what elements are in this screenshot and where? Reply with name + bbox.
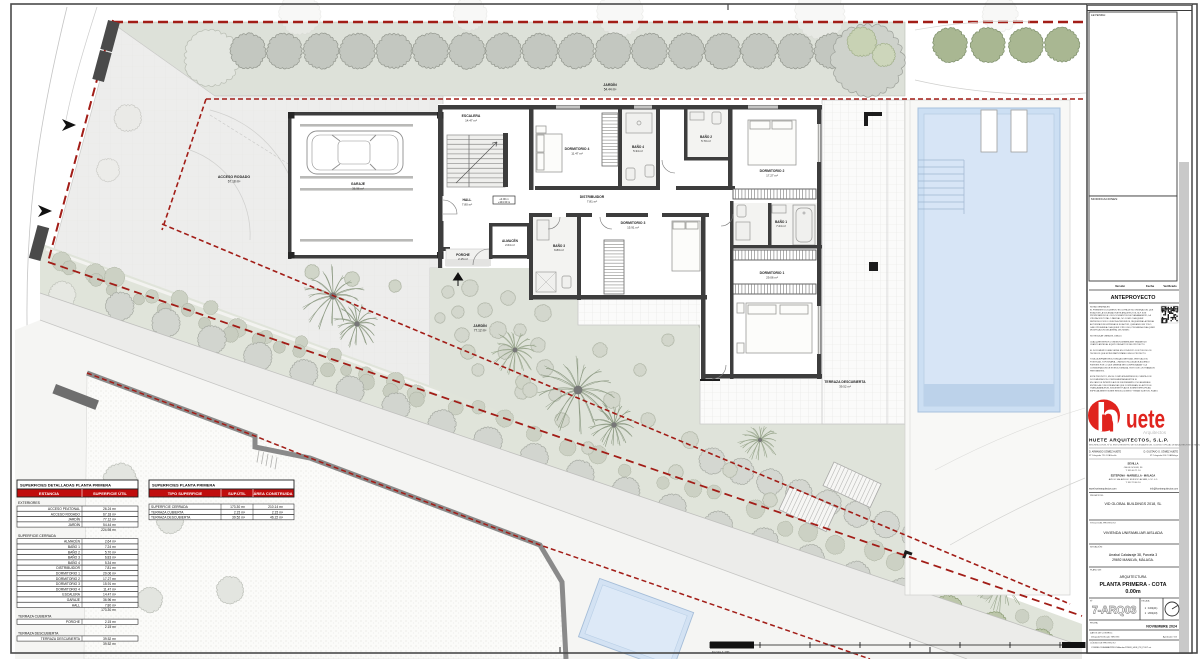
svg-text:5.34 m²: 5.34 m²	[105, 561, 117, 565]
svg-text:POSTECAS, TOPOGRAFIA...) HA SI: POSTECAS, TOPOGRAFIA...) HA SIDO INCLUID…	[1090, 361, 1150, 364]
svg-text:2.15 m²: 2.15 m²	[105, 625, 117, 629]
svg-text:EL PRESENTE DOCUMENTO ES COPIA: EL PRESENTE DOCUMENTO ES COPIA DE SU ORI…	[1090, 308, 1154, 311]
svg-text:173.30 m²: 173.30 m²	[230, 505, 246, 509]
svg-text:7.81 m²: 7.81 m²	[105, 566, 117, 570]
svg-text:HUETE ARQUITECTOS, S.L.P.: HUETE ARQUITECTOS, S.L.P.	[1089, 438, 1169, 443]
svg-text:TERRAZA DESCUBIERTA: TERRAZA DESCUBIERTA	[18, 631, 59, 635]
svg-text:FECHA:: FECHA:	[1090, 622, 1098, 625]
svg-text:VID GLOBAL BUILDINGS 2018, SL: VID GLOBAL BUILDINGS 2018, SL	[1105, 502, 1162, 506]
svg-text:TÍTULO DEL PROYECTO:: TÍTULO DEL PROYECTO:	[1090, 522, 1116, 525]
svg-text:7.24 m²: 7.24 m²	[105, 545, 117, 549]
svg-text:2.64 m²: 2.64 m²	[505, 243, 515, 247]
svg-text:DORMITORIO 4: DORMITORIO 4	[56, 587, 80, 591]
svg-text:6.83 m²: 6.83 m²	[105, 556, 117, 560]
svg-text:D. ARMANDO GÓMEZ HUETE: D. ARMANDO GÓMEZ HUETE	[1089, 451, 1121, 454]
svg-text:Dibujado/Verificado: SRL/GG: Dibujado/Verificado: SRL/GG	[1091, 636, 1120, 639]
svg-text:ACCESO RODADO: ACCESO RODADO	[218, 175, 251, 179]
svg-text:REPRODUCCION O CESION A TERCER: REPRODUCCION O CESION A TERCEROS, REQUER…	[1090, 320, 1154, 323]
svg-text:ESCALERA: ESCALERA	[62, 593, 80, 597]
svg-text:ESTANCIA: ESTANCIA	[39, 491, 59, 496]
svg-text:Aprobado: GG: Aprobado: GG	[1163, 636, 1177, 639]
svg-text:CONSIDERACION DE ESTRUCTURAS A: CONSIDERACION DE ESTRUCTURAS AL TEXTO DE…	[1090, 366, 1155, 369]
svg-text:EL DOCUMENTO DEBE VERSE EN CON: EL DOCUMENTO DEBE VERSE EN CONJUNTO CON …	[1090, 350, 1152, 352]
svg-text:17.27 m²: 17.27 m²	[766, 174, 778, 178]
svg-text:DORMITORIO 3: DORMITORIO 3	[621, 221, 646, 225]
svg-text:EXTERIORES: EXTERIORES	[18, 501, 41, 505]
svg-text:DISTRIBUIDOR: DISTRIBUIDOR	[580, 195, 605, 199]
svg-text:29692 MANILVA, MÁLAGA.: 29692 MANILVA, MÁLAGA.	[1112, 558, 1154, 562]
svg-text:210.14 m²: 210.14 m²	[268, 505, 284, 509]
svg-text:Fecha: Fecha	[1146, 284, 1155, 288]
svg-text:DOCUMENTACION COMPLEMENTARIA E: DOCUMENTACION COMPLEMENTARIA ENTRE SI.	[1090, 378, 1138, 381]
svg-text:2.15 m²: 2.15 m²	[272, 510, 284, 514]
svg-text:T. 955 46 71 10: T. 955 46 71 10	[1125, 470, 1141, 472]
svg-text:39.52 m²: 39.52 m²	[232, 516, 246, 520]
svg-text:JARDÍN: JARDÍN	[473, 323, 487, 328]
svg-text:PORCHE: PORCHE	[66, 620, 81, 624]
svg-text:CUALQUIER ERROR U OMISION DEBE: CUALQUIER ERROR U OMISION DEBERA SER TRA…	[1090, 340, 1147, 343]
svg-text:17.27 m²: 17.27 m²	[103, 577, 117, 581]
svg-text:14.47 m²: 14.47 m²	[103, 593, 117, 597]
svg-text:39.52 m²: 39.52 m²	[103, 642, 117, 646]
svg-text:ESPECIALMENTE SOBRE RESOLUCION: ESPECIALMENTE SOBRE RESOLUCIONES Y TEMAS…	[1090, 390, 1159, 393]
svg-text:ACCESO PEATONAL: ACCESO PEATONAL	[48, 507, 80, 511]
svg-text:TERRAZA DESCUBIERTA: TERRAZA DESCUBIERTA	[824, 380, 866, 384]
svg-text:Versión: Versión	[1115, 284, 1125, 288]
svg-text:www.huetearquitectos.com: www.huetearquitectos.com	[1089, 488, 1117, 491]
svg-text:JARDÍN: JARDÍN	[603, 82, 617, 87]
svg-text:29.06 m²: 29.06 m²	[766, 276, 778, 280]
svg-text:T. 952 79 66 10: T. 952 79 66 10	[1125, 482, 1141, 484]
svg-text:14.47 m²: 14.47 m²	[465, 119, 477, 123]
svg-text:224.98 m²: 224.98 m²	[101, 528, 117, 532]
svg-text:54.44 m²: 54.44 m²	[103, 523, 117, 527]
svg-text:INSCRITA CON EL Nº 41 EN EL RE: INSCRITA CON EL Nº 41 EN EL REGISTRO DE …	[1089, 444, 1200, 447]
svg-text:2.15 m²: 2.15 m²	[458, 257, 468, 261]
svg-text:NO REGULAR OBRAS EL DIBUJO.: NO REGULAR OBRAS EL DIBUJO.	[1090, 335, 1123, 338]
svg-text:SITUACIÓN:: SITUACIÓN:	[1090, 546, 1103, 549]
svg-text:Nº Colegiado 654 COAMálaga: Nº Colegiado 654 COAMálaga	[1150, 454, 1179, 457]
svg-text:6.83 m²: 6.83 m²	[554, 248, 564, 252]
svg-text:MODIFICACIONES:: MODIFICACIONES:	[1091, 197, 1118, 201]
svg-text:36.96 m²: 36.96 m²	[352, 187, 364, 191]
svg-text:67.18 m²: 67.18 m²	[103, 512, 117, 516]
svg-text:SUPERFICIE CERRADA: SUPERFICIE CERRADA	[18, 534, 57, 538]
svg-text:DORMITORIO 1: DORMITORIO 1	[760, 271, 785, 275]
svg-text:ANTEPROYECTO: ANTEPROYECTO	[1111, 295, 1156, 301]
svg-text:DORMITORIO 3: DORMITORIO 3	[56, 582, 80, 586]
svg-text:HALL: HALL	[72, 603, 80, 607]
svg-text:FUENTES POR LO QUE DEBERA SER: FUENTES POR LO QUE DEBERA SER COMPROBADA…	[1090, 364, 1147, 367]
svg-text:D. GUSTAVO G. GÓMEZ HUETE: D. GUSTAVO G. GÓMEZ HUETE	[1144, 451, 1179, 454]
svg-text:ENTRE LAS CONCORDANCIAS QUE CO: ENTRE LAS CONCORDANCIAS QUE CONTENGAN, E…	[1090, 384, 1152, 387]
svg-text:11.47 m²: 11.47 m²	[571, 152, 583, 156]
svg-text:AUTORIZACION EXPRESA DE SU AUT: AUTORIZACION EXPRESA DE SU AUTOR, QUEDAN…	[1090, 323, 1152, 326]
svg-text:54.44 m²: 54.44 m²	[604, 88, 617, 92]
svg-text:11.47 m²: 11.47 m²	[103, 587, 117, 591]
svg-text:1 : 100(A1): 1 : 100(A1)	[1145, 606, 1158, 610]
svg-text:7.81 m²: 7.81 m²	[587, 200, 597, 204]
svg-text:BAÑO 2: BAÑO 2	[68, 549, 80, 554]
svg-text:ALMACÉN: ALMACÉN	[64, 539, 81, 544]
svg-text:0.00m: 0.00m	[1125, 589, 1140, 595]
svg-text:2.15 m²: 2.15 m²	[105, 620, 117, 624]
svg-text:77.12 m²: 77.12 m²	[474, 329, 487, 333]
svg-text:NOTAS GENERALES:: NOTAS GENERALES:	[1090, 306, 1111, 309]
svg-text:info@huetearquitectos.com: info@huetearquitectos.com	[1150, 488, 1178, 491]
svg-text:HALL: HALL	[462, 198, 471, 202]
svg-text:AVD M. SALAVILLE I EDIFICIO AL: AVD M. SALAVILLE I EDIFICIO ALTAIR, LOC.…	[1109, 478, 1158, 481]
svg-text:39.52 m²: 39.52 m²	[103, 637, 117, 641]
svg-text:SUPERFICIE ÚTIL: SUPERFICIE ÚTIL	[93, 491, 128, 496]
svg-text:PLANTA PRIMERA - COTA: PLANTA PRIMERA - COTA	[1099, 582, 1166, 588]
svg-text:ARQUITECTURA: ARQUITECTURA	[1120, 575, 1147, 579]
svg-text:36.96 m²: 36.96 m²	[103, 598, 117, 602]
svg-text:uete: uete	[1126, 404, 1165, 434]
svg-text:DORMITORIO 4: DORMITORIO 4	[565, 147, 590, 151]
svg-text:Arquitectos: Arquitectos	[1143, 430, 1167, 435]
svg-text:CÓDIGO DE PROYECTO:: CÓDIGO DE PROYECTO:	[1090, 642, 1116, 645]
svg-text:SUPERFICIES PLANTA PRIMERA: SUPERFICIES PLANTA PRIMERA	[152, 483, 215, 488]
svg-text:Nº Colegiado 720 COASevilla: Nº Colegiado 720 COASevilla	[1089, 454, 1117, 457]
svg-text:DORMITORIO 2: DORMITORIO 2	[56, 577, 80, 581]
svg-text:7.80 m²: 7.80 m²	[105, 603, 117, 607]
svg-text:5.70 m²: 5.70 m²	[105, 550, 117, 554]
svg-text:ESCALA:: ESCALA:	[1142, 600, 1151, 603]
svg-text:LEYENDA:: LEYENDA:	[1091, 13, 1106, 17]
svg-text:DORMITORIO 2: DORMITORIO 2	[760, 169, 785, 173]
svg-text:TRASLADARA EN EL SIGUIENTE PLA: TRASLADARA EN EL SIGUIENTE PLAZOS SOBRE …	[1090, 387, 1152, 390]
svg-text:TERRAZA DESCUBIERTA: TERRAZA DESCUBIERTA	[151, 516, 191, 520]
svg-text:TIPO SUPERFICIE: TIPO SUPERFICIE	[168, 491, 203, 496]
svg-text:7-ARQ03: 7-ARQ03	[1092, 605, 1137, 617]
svg-text:BAÑO 4: BAÑO 4	[68, 560, 80, 565]
svg-text:GARAJE: GARAJE	[67, 598, 81, 602]
svg-text:C24MELODRAMAVIPROCAdmhm/22048_: C24MELODRAMAVIPROCAdmhm/22048_HUE_P8_PO0…	[1091, 646, 1152, 649]
svg-text:TECNICOS QUE ESTEN PARTICIPAND: TECNICOS QUE ESTEN PARTICIPANDO EN EL PR…	[1090, 352, 1147, 355]
svg-text:CALLE SOLER, 36: CALLE SOLER, 36	[1124, 466, 1143, 469]
svg-text:173.30 m²: 173.30 m²	[101, 608, 117, 612]
svg-text:PROMOTOR:: PROMOTOR:	[1090, 495, 1104, 497]
svg-text:2.64 m²: 2.64 m²	[105, 540, 117, 544]
svg-text:2.15 m²: 2.15 m²	[234, 510, 246, 514]
svg-text:BAÑO 1: BAÑO 1	[68, 544, 80, 549]
svg-text:ÁREA CONSTRUIDA: ÁREA CONSTRUIDA	[254, 491, 293, 496]
svg-text:TERRAZA CUBIERTA: TERRAZA CUBIERTA	[151, 510, 184, 514]
svg-text:29.06 m²: 29.06 m²	[103, 572, 117, 576]
svg-text:Verificado: Verificado	[1163, 284, 1177, 288]
svg-text:Arrabal Calataraje 38, Parcela: Arrabal Calataraje 38, Parcela 3	[1109, 553, 1157, 557]
svg-text:VIVIENDA UNIFAMILIAR AISLADA: VIVIENDA UNIFAMILIAR AISLADA	[1103, 531, 1163, 535]
svg-text:46.22 m²: 46.22 m²	[270, 516, 284, 520]
svg-text:+104.30 m: +104.30 m	[498, 200, 510, 204]
svg-text:77.12 m²: 77.12 m²	[103, 518, 117, 522]
svg-text:CUANTO ANTES AL EQUIPO REDACTO: CUANTO ANTES AL EQUIPO REDACTOR DEL PROY…	[1090, 343, 1146, 346]
svg-text:GARAJE: GARAJE	[351, 182, 366, 186]
svg-text:h: h	[1100, 411, 1114, 437]
svg-text:SUP.ÚTIL: SUP.ÚTIL	[228, 491, 246, 496]
svg-text:PERTINENTES.: PERTINENTES.	[1090, 370, 1105, 372]
svg-text:67.18 m²: 67.18 m²	[228, 180, 241, 184]
svg-text:TERRAZA CUBIERTA: TERRAZA CUBIERTA	[18, 615, 52, 619]
svg-text:SEVILLA: SEVILLA	[1128, 462, 1139, 466]
svg-text:DATOS DE CONTROL:: DATOS DE CONTROL:	[1090, 632, 1113, 635]
svg-text:Nº: Nº	[1090, 600, 1092, 603]
svg-text:JARDÍN: JARDÍN	[68, 518, 81, 522]
svg-text:NOVIEMBRE 2024: NOVIEMBRE 2024	[1146, 625, 1177, 629]
svg-text:26.24 m²: 26.24 m²	[103, 507, 117, 511]
svg-text:UTILIZACION TOTAL O PARCIAL, N: UTILIZACION TOTAL O PARCIAL, NO COMO CUA…	[1090, 317, 1144, 320]
svg-text:7.80 m²: 7.80 m²	[462, 203, 472, 207]
svg-text:15.91 m²: 15.91 m²	[103, 582, 117, 586]
svg-text:5.34 m²: 5.34 m²	[633, 149, 643, 153]
svg-text:SUPERFICIE CERRADA: SUPERFICIE CERRADA	[151, 505, 189, 509]
svg-text:SUPERFICIES DETALLADAS PLANTA: SUPERFICIES DETALLADAS PLANTA PRIMERA	[20, 483, 111, 488]
svg-text:PLANO DE:: PLANO DE:	[1090, 569, 1102, 572]
svg-text:7.24 m²: 7.24 m²	[776, 224, 786, 228]
svg-text:15.91 m²: 15.91 m²	[627, 226, 639, 230]
svg-text:BAÑO 3: BAÑO 3	[68, 555, 80, 560]
svg-text:JARDÍN: JARDÍN	[68, 523, 81, 527]
svg-text:CASO PROHIBIDA CUALQUIER OTRO: CASO PROHIBIDA CUALQUIER OTRO USO; PROHI…	[1090, 326, 1155, 329]
svg-text:TERRAZA DESCUBIERTA: TERRAZA DESCUBIERTA	[41, 637, 81, 641]
svg-text:EN CASO DE INTERPOLACION DISCR: EN CASO DE INTERPOLACION DISCREPANTE O N…	[1090, 381, 1151, 384]
svg-text:ESCALERA: ESCALERA	[462, 114, 481, 118]
svg-text:ESTE PROYECTO, EN SU COMPLETA: ESTE PROYECTO, EN SU COMPLETA IMPRESION,…	[1090, 375, 1152, 378]
svg-text:DORMITORIO 1: DORMITORIO 1	[56, 572, 80, 576]
svg-text:ACCESO RODADO: ACCESO RODADO	[51, 512, 81, 516]
svg-text:DISTRIBUIDOR: DISTRIBUIDOR	[56, 566, 80, 570]
svg-text:1 : 200(A3): 1 : 200(A3)	[1145, 611, 1158, 615]
svg-text:MODIFICACION UNILATERAL DEL MI: MODIFICACION UNILATERAL DEL MISMO.	[1090, 329, 1130, 332]
svg-text:PROPIETARIOS DE LOS DOCUMENTOS: PROPIETARIOS DE LOS DOCUMENTOS DE PLANEA…	[1090, 314, 1151, 317]
svg-text:ES AUTOR LA SOCIEDAD HUETE ARQ: ES AUTOR LA SOCIEDAD HUETE ARQUITECTOS, …	[1090, 311, 1147, 314]
svg-text:39.52 m²: 39.52 m²	[839, 385, 851, 389]
svg-text:5.70 m²: 5.70 m²	[701, 139, 711, 143]
svg-text:TODA LA INFRAESTRUCTURA (ACOME: TODA LA INFRAESTRUCTURA (ACOMETIDAS, VEN…	[1090, 358, 1148, 361]
